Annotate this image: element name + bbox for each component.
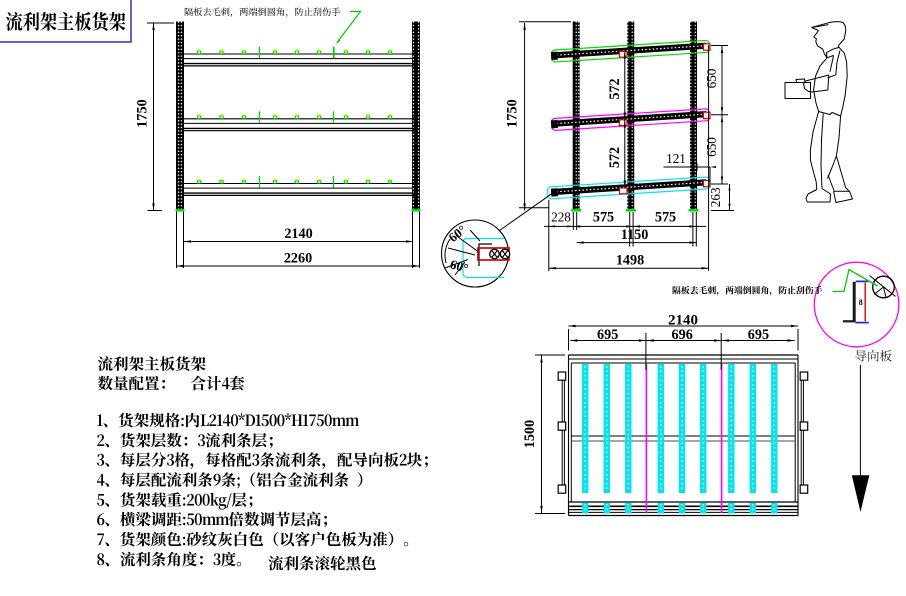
svg-text:1500: 1500 (522, 420, 538, 448)
svg-text:228: 228 (551, 210, 571, 225)
svg-text:696: 696 (672, 327, 693, 343)
svg-text:695: 695 (597, 327, 618, 343)
svg-text:2140: 2140 (284, 226, 312, 242)
svg-text:695: 695 (748, 327, 769, 343)
svg-text:650: 650 (704, 137, 719, 157)
svg-text:575: 575 (655, 210, 676, 226)
svg-text:1750: 1750 (135, 99, 151, 127)
svg-text:572: 572 (607, 78, 623, 99)
svg-text:572: 572 (607, 147, 623, 168)
svg-text:575: 575 (593, 210, 614, 226)
svg-text:1150: 1150 (621, 227, 649, 243)
svg-text:1498: 1498 (616, 253, 644, 269)
svg-text:121: 121 (666, 151, 686, 166)
svg-text:1750: 1750 (505, 99, 521, 127)
svg-text:650: 650 (704, 68, 719, 88)
svg-text:263: 263 (708, 187, 723, 207)
svg-text:8: 8 (859, 298, 863, 307)
svg-text:2260: 2260 (284, 251, 312, 267)
